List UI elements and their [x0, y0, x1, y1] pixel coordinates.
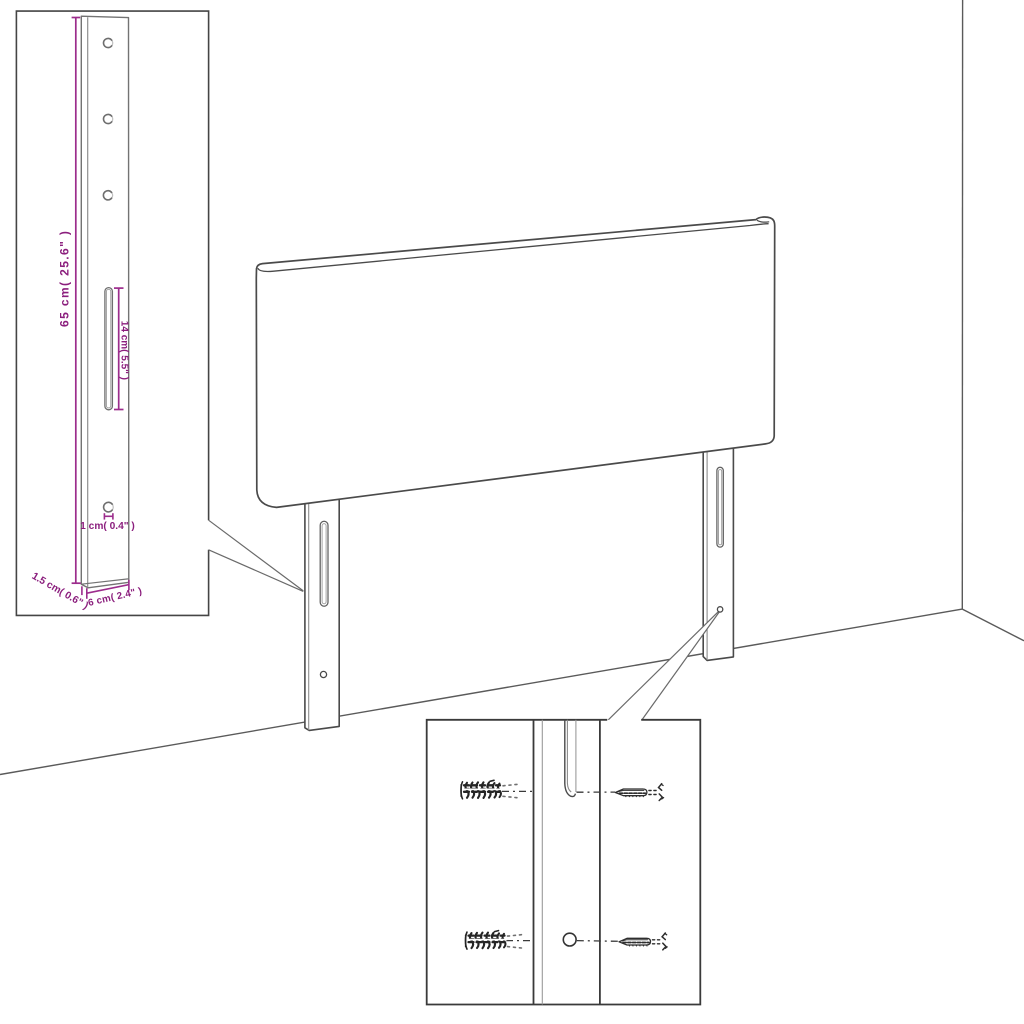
svg-text:14 cm( 5.5" ): 14 cm( 5.5" ) [118, 321, 129, 380]
svg-text:1 cm( 0.4" ): 1 cm( 0.4" ) [80, 521, 135, 532]
svg-text:65 cm( 25.6" ): 65 cm( 25.6" ) [57, 230, 71, 327]
